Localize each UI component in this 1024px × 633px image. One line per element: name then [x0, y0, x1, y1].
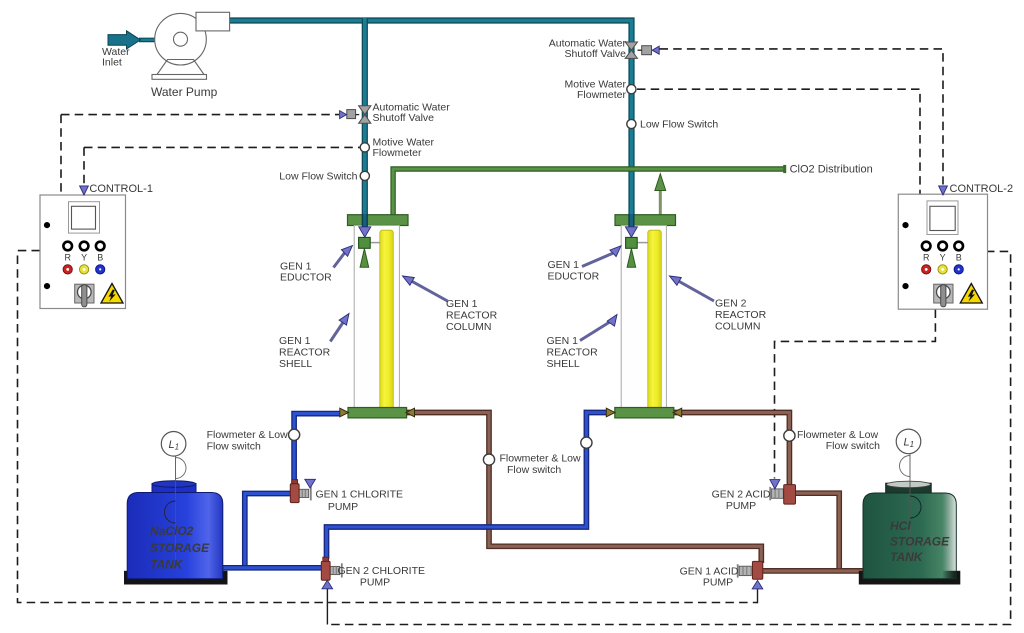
svg-text:ClO2 Distribution: ClO2 Distribution	[790, 164, 873, 176]
svg-text:EDUCTOR: EDUCTOR	[548, 271, 600, 283]
svg-text:NaClO2: NaClO2	[150, 524, 194, 538]
svg-text:COLUMN: COLUMN	[715, 321, 761, 333]
svg-text:TANK: TANK	[890, 550, 924, 564]
svg-text:R: R	[923, 253, 930, 263]
svg-text:SHELL: SHELL	[279, 358, 312, 370]
svg-text:Flowmeter & Low: Flowmeter & Low	[500, 453, 582, 465]
svg-text:PUMP: PUMP	[360, 577, 390, 589]
svg-text:Flowmeter: Flowmeter	[373, 147, 423, 159]
svg-text:STORAGE: STORAGE	[150, 541, 210, 555]
svg-text:PUMP: PUMP	[328, 501, 358, 513]
svg-text:REACTOR: REACTOR	[715, 309, 767, 321]
svg-text:Flow switch: Flow switch	[826, 440, 880, 452]
svg-text:GEN 1: GEN 1	[547, 335, 579, 347]
svg-text:SHELL: SHELL	[547, 358, 580, 370]
svg-text:GEN 1: GEN 1	[548, 259, 580, 271]
svg-text:Y: Y	[81, 253, 87, 263]
svg-text:Flow switch: Flow switch	[507, 464, 561, 476]
svg-text:GEN 2: GEN 2	[715, 298, 747, 310]
svg-text:GEN 1 CHLORITE: GEN 1 CHLORITE	[316, 489, 404, 501]
svg-text:GEN 1: GEN 1	[446, 298, 478, 310]
svg-text:CONTROL-1: CONTROL-1	[89, 183, 153, 195]
svg-text:Y: Y	[940, 253, 946, 263]
svg-text:HCl: HCl	[890, 519, 911, 533]
svg-text:GEN 2 ACID: GEN 2 ACID	[712, 489, 771, 501]
svg-text:PUMP: PUMP	[703, 577, 733, 589]
svg-text:REACTOR: REACTOR	[547, 347, 599, 359]
svg-text:B: B	[956, 253, 962, 263]
svg-text:Water Pump: Water Pump	[151, 85, 218, 99]
svg-text:Flow switch: Flow switch	[207, 441, 261, 453]
svg-text:Flowmeter & Low: Flowmeter & Low	[207, 429, 289, 441]
svg-text:REACTOR: REACTOR	[446, 310, 498, 322]
svg-text:PUMP: PUMP	[726, 500, 756, 512]
svg-text:Inlet: Inlet	[102, 57, 122, 69]
svg-text:EDUCTOR: EDUCTOR	[280, 271, 332, 283]
svg-text:Low Flow Switch: Low Flow Switch	[279, 171, 357, 183]
svg-text:Shutoff Valve: Shutoff Valve	[565, 48, 627, 60]
svg-text:STORAGE: STORAGE	[890, 535, 950, 549]
svg-text:GEN 2 CHLORITE: GEN 2 CHLORITE	[338, 565, 426, 577]
svg-text:GEN 1: GEN 1	[279, 335, 311, 347]
svg-text:Flowmeter: Flowmeter	[577, 89, 627, 101]
svg-text:Shutoff Valve: Shutoff Valve	[373, 112, 435, 124]
svg-text:COLUMN: COLUMN	[446, 321, 492, 333]
svg-text:Low Flow Switch: Low Flow Switch	[640, 119, 718, 131]
svg-text:CONTROL-2: CONTROL-2	[950, 183, 1014, 195]
svg-text:B: B	[97, 253, 103, 263]
svg-text:REACTOR: REACTOR	[279, 347, 331, 359]
svg-text:TANK: TANK	[150, 558, 184, 572]
svg-text:R: R	[64, 253, 71, 263]
